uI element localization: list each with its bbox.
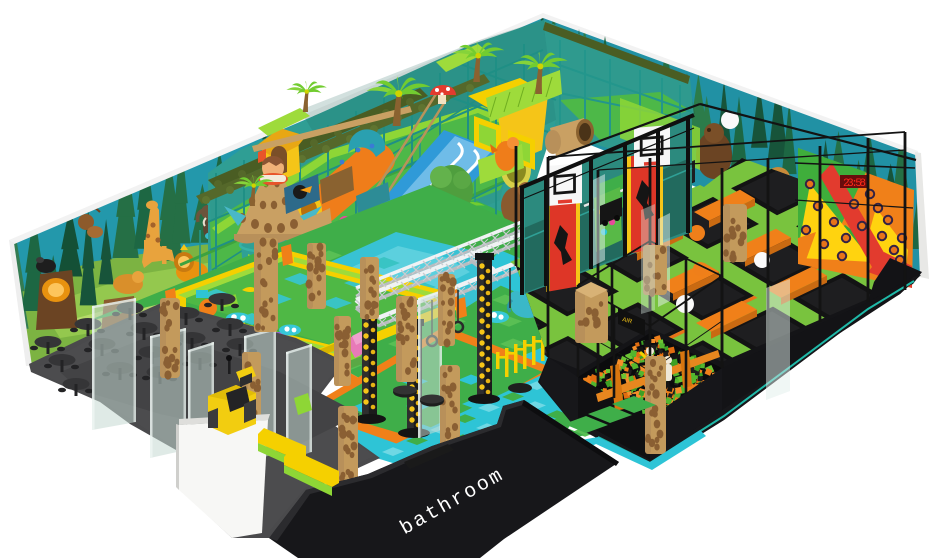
svg-text:23:58: 23:58 — [843, 178, 866, 190]
